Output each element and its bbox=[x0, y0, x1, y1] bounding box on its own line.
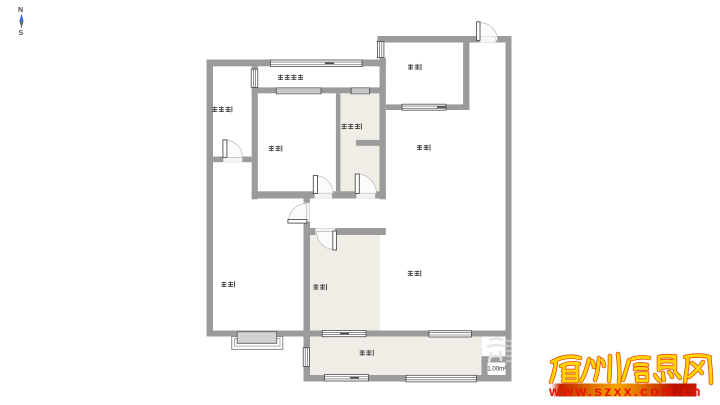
svg-text:1.00m²: 1.00m² bbox=[487, 366, 506, 373]
svg-text:www.szxx.com.cn: www.szxx.com.cn bbox=[548, 383, 703, 399]
svg-text:N: N bbox=[18, 7, 23, 14]
svg-text:S: S bbox=[19, 30, 24, 37]
